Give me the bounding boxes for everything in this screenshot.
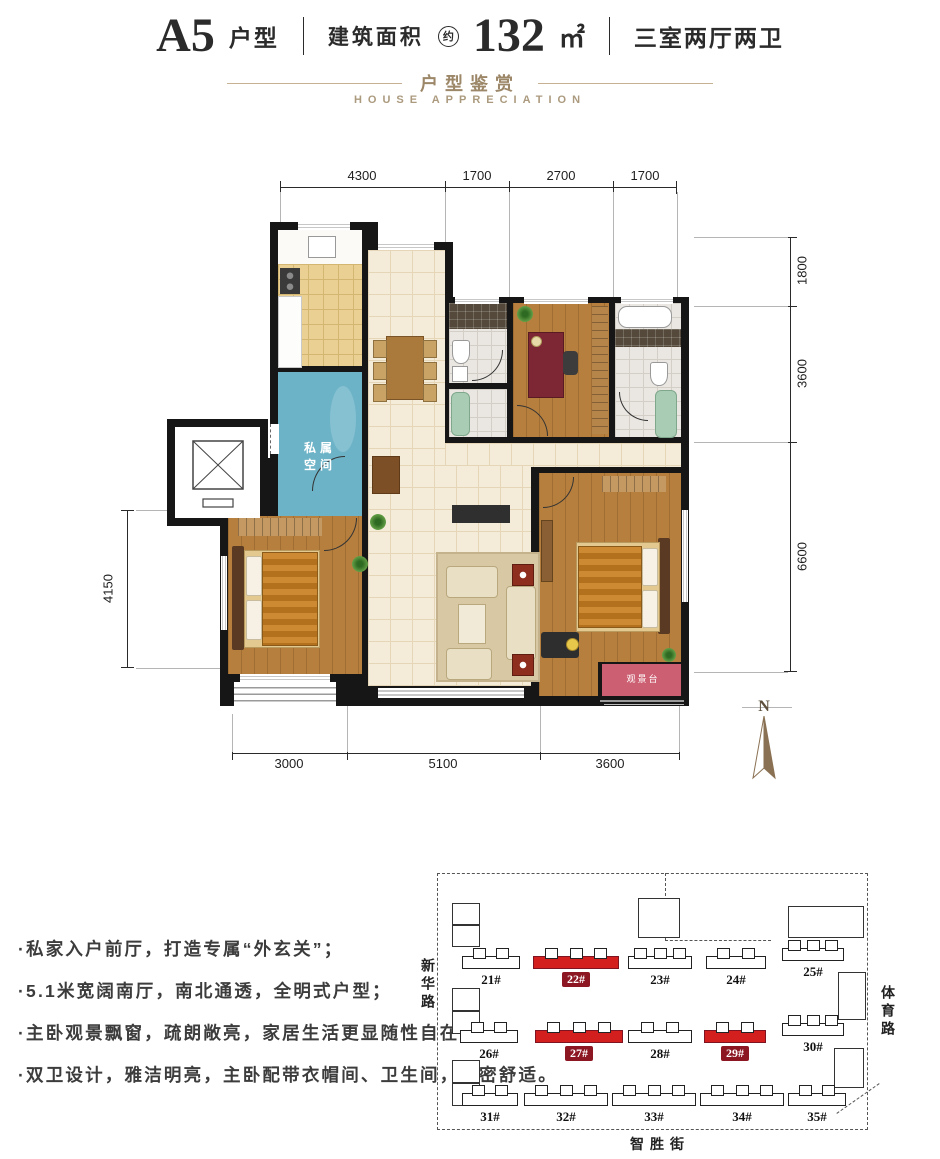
- title-line-left: [227, 83, 402, 84]
- bay-outline: [600, 700, 684, 702]
- building-34: 34#: [700, 1085, 784, 1126]
- ext-line: [540, 706, 541, 752]
- stove: [280, 268, 300, 294]
- toilet-bath1: [452, 340, 470, 364]
- building-label: 28#: [650, 1046, 670, 1062]
- ext-line: [136, 668, 222, 669]
- compass-n-label: N: [750, 698, 778, 716]
- dim-bottom-2: 5100: [429, 756, 458, 771]
- window-study: [524, 297, 588, 304]
- vanity-lamp: [566, 638, 579, 651]
- unit-code: A5: [156, 10, 215, 62]
- dim-top-3: 2700: [547, 168, 576, 183]
- bookshelf: [592, 306, 608, 434]
- compass-needle-icon: [751, 716, 777, 782]
- building-30: 30#: [782, 1015, 844, 1056]
- building-label: 24#: [726, 972, 746, 988]
- dim-chain-top: 4300 1700 2700 1700: [280, 168, 677, 192]
- ext-line: [694, 306, 788, 307]
- area-value: 132: [473, 10, 545, 62]
- kitchen-sink: [308, 236, 336, 258]
- road-label-right: 体育路: [876, 985, 896, 1055]
- dim-line: [127, 510, 128, 668]
- building-label: 26#: [479, 1046, 499, 1062]
- bathroom2-accent-wall: [615, 329, 681, 347]
- ext-line: [445, 192, 446, 244]
- dim-bottom-3: 3600: [596, 756, 625, 771]
- ext-line: [679, 702, 680, 752]
- bathtub: [618, 306, 672, 328]
- dining-chair: [373, 340, 387, 358]
- bay-outline2: [604, 704, 684, 705]
- ext-line: [613, 192, 614, 297]
- building-body: [628, 1030, 692, 1043]
- site-structure: [788, 906, 864, 938]
- window-dining: [378, 242, 434, 250]
- dining-chair: [423, 384, 437, 402]
- pillow: [246, 600, 262, 640]
- bathroom1-accent-wall: [449, 303, 507, 329]
- dim-line: [790, 237, 791, 672]
- building-28: 28#: [628, 1022, 692, 1063]
- building-33: 33#: [612, 1085, 696, 1126]
- building-body: [704, 1030, 766, 1043]
- laundry-chaise: [451, 392, 470, 436]
- dim-line: [280, 187, 677, 188]
- window-bath2: [621, 297, 673, 304]
- building-label: 23#: [650, 972, 670, 988]
- window-bedroom2-side: [221, 556, 227, 630]
- bay-window-bedroom2: [234, 682, 336, 706]
- section-title: 户型鉴赏: [0, 70, 940, 96]
- plant-icon: [662, 648, 676, 662]
- building-26: 26#: [460, 1022, 518, 1063]
- feature-item: ·主卧观景飘窗，疏朗敞亮，家居生活更显随性自在；: [18, 1020, 458, 1045]
- plant-icon: [352, 556, 368, 572]
- ext-line: [509, 192, 510, 297]
- building-25: 25#: [782, 940, 844, 981]
- feature-item: ·5.1米宽阔南厅，南北通透，全明式户型；: [18, 978, 458, 1003]
- bedroom2-wardrobe: [238, 518, 322, 536]
- building-27: 27#: [535, 1022, 623, 1062]
- flyer-page: A5 户型 建筑面积 约 132 ㎡ 三室两厅两卫 户型鉴赏 HOUSE APP…: [0, 0, 940, 1159]
- building-roof: [782, 940, 844, 949]
- building-21: 21#: [462, 948, 520, 989]
- tv-console: [452, 505, 510, 523]
- section-title-en: HOUSE APPRECIATION: [0, 94, 940, 106]
- private-space-label: 私属空间: [300, 440, 340, 474]
- header-divider2: [609, 17, 610, 55]
- window-bedroom2: [240, 674, 330, 682]
- toilet-bath2: [650, 362, 668, 386]
- coffee-table: [458, 604, 486, 644]
- dining-chair: [423, 362, 437, 380]
- dim-right-2: 3600: [795, 344, 810, 404]
- end-table: [512, 654, 534, 676]
- dim-line: [232, 753, 680, 754]
- feature-item: ·私家入户前厅，打造专属“外玄关”；: [18, 936, 458, 961]
- dim-chain-bottom: 3000 5100 3600: [232, 742, 680, 772]
- bedroom2-headboard: [232, 546, 244, 650]
- building-32: 32#: [524, 1085, 608, 1126]
- sofa-top: [446, 566, 498, 598]
- ext-line: [677, 192, 678, 297]
- window-balcony: [378, 688, 524, 698]
- dim-tick: [121, 510, 134, 511]
- header: A5 户型 建筑面积 约 132 ㎡ 三室两厅两卫: [0, 10, 940, 62]
- building-label: 35#: [807, 1109, 827, 1125]
- building-23: 23#: [628, 948, 692, 989]
- sink-bath1: [452, 366, 468, 382]
- master-duvet: [578, 546, 642, 628]
- pillow: [642, 548, 658, 586]
- building-29: 29#: [704, 1022, 766, 1062]
- building-roof: [535, 1022, 623, 1031]
- window-kitchen: [298, 222, 350, 230]
- building-label: 22#: [562, 972, 590, 987]
- bath2-chaise: [655, 390, 677, 438]
- building-label: 33#: [644, 1109, 664, 1125]
- ext-line: [232, 714, 233, 752]
- road-label-bottom: 智胜街: [580, 1134, 740, 1154]
- building-label: 29#: [721, 1046, 749, 1061]
- dim-right-1: 1800: [795, 241, 810, 301]
- entry-mat: [372, 456, 400, 494]
- dim-chain-left: 4150: [117, 510, 147, 668]
- dining-chair: [373, 362, 387, 380]
- building-roof: [700, 1085, 784, 1094]
- site-structure: [638, 898, 680, 938]
- pillow: [642, 590, 658, 628]
- corridor-floor: [445, 443, 681, 467]
- section-title-cn: 户型鉴赏: [420, 70, 520, 96]
- area-label: 建筑面积: [328, 21, 424, 51]
- dining-table: [386, 336, 424, 400]
- dining-chair: [423, 340, 437, 358]
- building-label: 25#: [803, 964, 823, 980]
- kitchen-counter: [278, 296, 302, 368]
- building-label: 21#: [481, 972, 501, 988]
- dim-tick: [121, 667, 134, 668]
- road-label-left: 新华路: [416, 958, 436, 1028]
- end-table: [512, 564, 534, 586]
- building-label: 31#: [480, 1109, 500, 1125]
- ext-line: [694, 672, 788, 673]
- dim-top-1: 4300: [348, 168, 377, 183]
- master-wardrobe: [602, 476, 666, 492]
- building-roof: [628, 948, 692, 957]
- building-label: 27#: [565, 1046, 593, 1061]
- building-roof: [782, 1015, 844, 1024]
- master-dresser: [541, 520, 553, 582]
- siteplan-inner-dash-h: [665, 940, 771, 941]
- building-body: [788, 1093, 846, 1106]
- elevator-icon: [175, 427, 260, 518]
- ext-line: [347, 706, 348, 752]
- building-label: 34#: [732, 1109, 752, 1125]
- dressing-area-floor: [539, 662, 598, 696]
- room-config: 三室两厅两卫: [634, 19, 784, 53]
- site-structure: [452, 903, 480, 947]
- desk-lamp: [531, 336, 542, 347]
- plant-icon: [370, 514, 386, 530]
- area-unit: ㎡: [559, 18, 585, 55]
- building-roof: [524, 1085, 608, 1094]
- building-label: 30#: [803, 1039, 823, 1055]
- dim-top-4: 1700: [631, 168, 660, 183]
- dim-right-3: 6600: [795, 527, 810, 587]
- sofa-bottom: [446, 648, 492, 680]
- ext-line: [694, 237, 788, 238]
- building-roof: [612, 1085, 696, 1094]
- pillow: [246, 556, 262, 596]
- dim-top-2: 1700: [463, 168, 492, 183]
- header-divider: [303, 17, 304, 55]
- dim-bottom-1: 3000: [275, 756, 304, 771]
- title-line-right: [538, 83, 713, 84]
- dim-chain-right: 1800 3600 6600: [782, 237, 812, 672]
- building-body: [462, 956, 520, 969]
- window-master: [682, 510, 688, 602]
- plant-icon: [517, 306, 533, 322]
- sofa-right: [506, 586, 536, 660]
- feature-list: ·私家入户前厅，打造专属“外玄关”； ·5.1米宽阔南厅，南北通透，全明式户型；…: [18, 936, 458, 1087]
- building-label: 32#: [556, 1109, 576, 1125]
- study-chair: [563, 351, 578, 375]
- feature-item: ·双卫设计，雅洁明亮，主卧配带衣帽间、卫生间，私密舒适。: [18, 1062, 458, 1087]
- ext-line: [280, 192, 281, 224]
- building-35: 35#: [788, 1085, 846, 1126]
- unit-type-label: 户型: [229, 19, 279, 53]
- entry-door-gap: [270, 424, 279, 454]
- building-roof: [533, 948, 619, 957]
- window-bath1: [455, 297, 499, 304]
- ext-line: [694, 442, 788, 443]
- dim-left-1: 4150: [101, 559, 116, 619]
- building-22: 22#: [533, 948, 619, 988]
- building-31: 31#: [462, 1085, 518, 1126]
- building-body: [460, 1030, 518, 1043]
- building-body: [706, 956, 766, 969]
- dining-chair: [373, 384, 387, 402]
- bay-window-label: 观景台: [626, 672, 660, 685]
- building-body: [462, 1093, 518, 1106]
- approx-badge: 约: [438, 26, 459, 47]
- building-24: 24#: [706, 948, 766, 989]
- bedroom2-duvet: [262, 552, 318, 646]
